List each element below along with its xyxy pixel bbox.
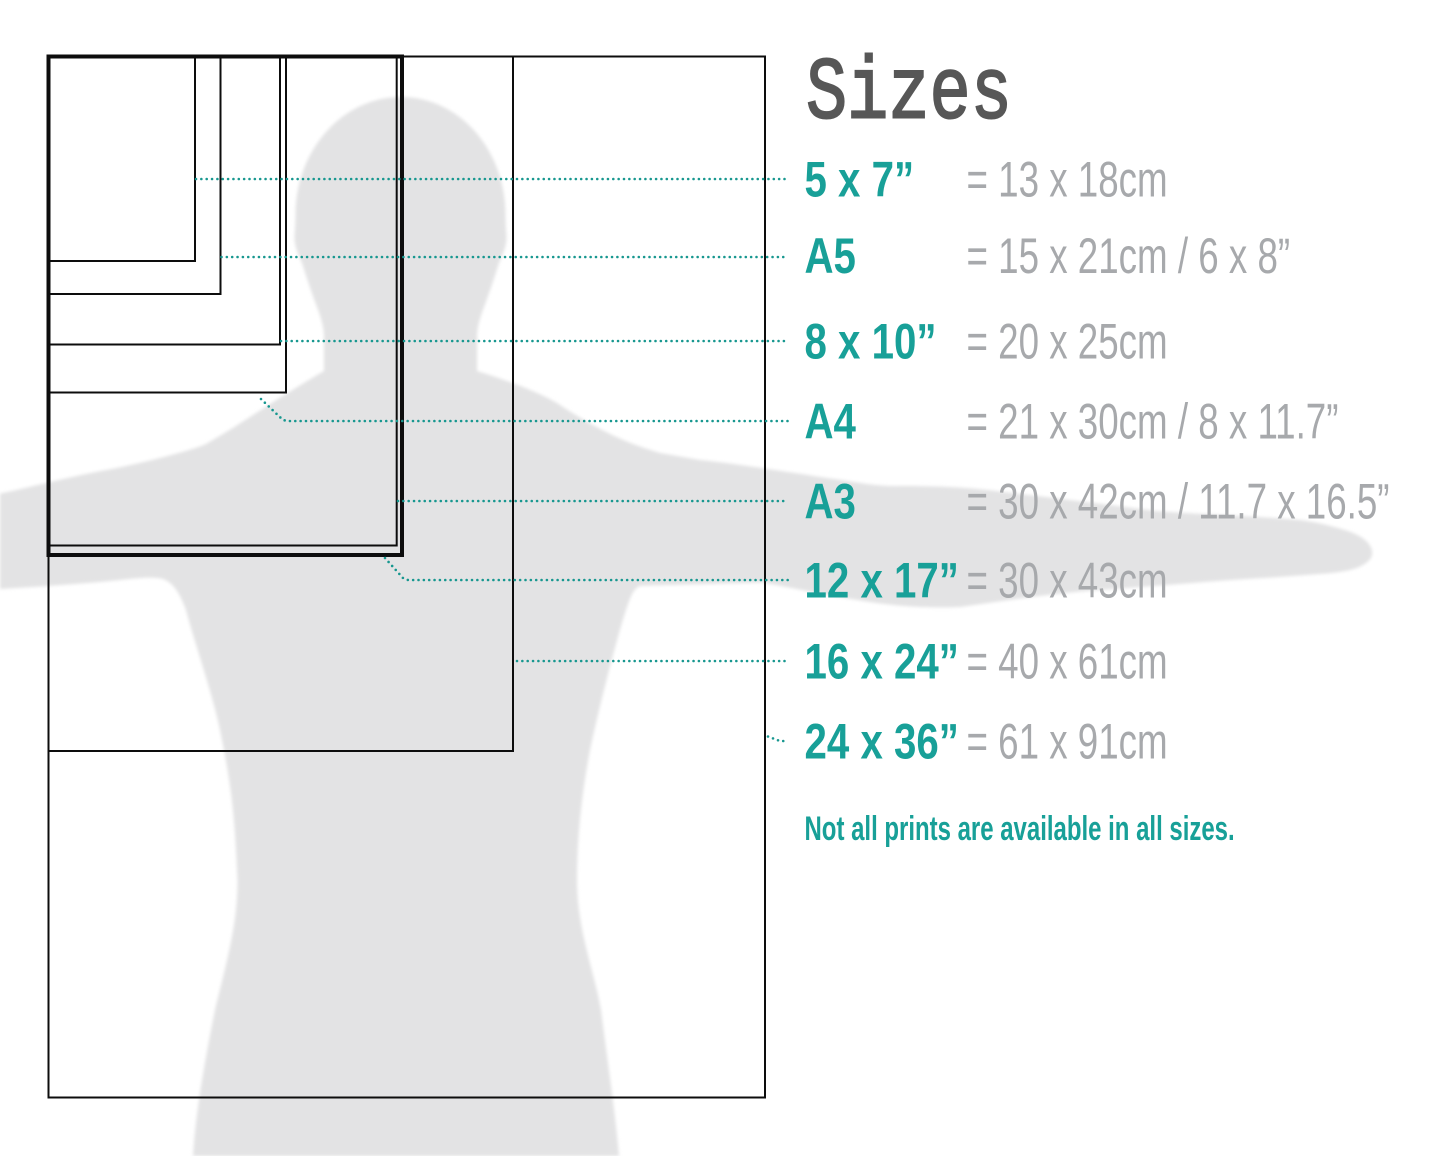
svg-text:Not all prints are available i: Not all prints are available in all size…: [805, 810, 1235, 848]
svg-text:A4: A4: [805, 393, 856, 449]
svg-text:= 15 x 21cm / 6 x 8”: = 15 x 21cm / 6 x 8”: [967, 229, 1291, 285]
svg-text:= 30 x 42cm / 11.7 x 16.5”: = 30 x 42cm / 11.7 x 16.5”: [967, 474, 1390, 530]
svg-text:= 13 x 18cm: = 13 x 18cm: [967, 152, 1168, 208]
svg-text:= 61 x 91cm: = 61 x 91cm: [967, 714, 1168, 770]
svg-text:Sizes: Sizes: [806, 44, 1012, 144]
svg-text:24 x 36”: 24 x 36”: [805, 713, 959, 769]
svg-text:= 40 x 61cm: = 40 x 61cm: [967, 634, 1168, 690]
svg-text:8 x 10”: 8 x 10”: [805, 313, 937, 369]
svg-text:= 30 x 43cm: = 30 x 43cm: [967, 553, 1168, 609]
svg-text:A5: A5: [805, 228, 856, 284]
svg-text:A3: A3: [805, 473, 856, 529]
svg-text:5 x 7”: 5 x 7”: [805, 151, 915, 207]
svg-text:= 21 x 30cm / 8 x 11.7”: = 21 x 30cm / 8 x 11.7”: [967, 394, 1339, 450]
svg-text:16 x 24”: 16 x 24”: [805, 633, 959, 689]
svg-text:12 x 17”: 12 x 17”: [805, 552, 959, 608]
svg-text:= 20 x 25cm: = 20 x 25cm: [967, 314, 1168, 370]
